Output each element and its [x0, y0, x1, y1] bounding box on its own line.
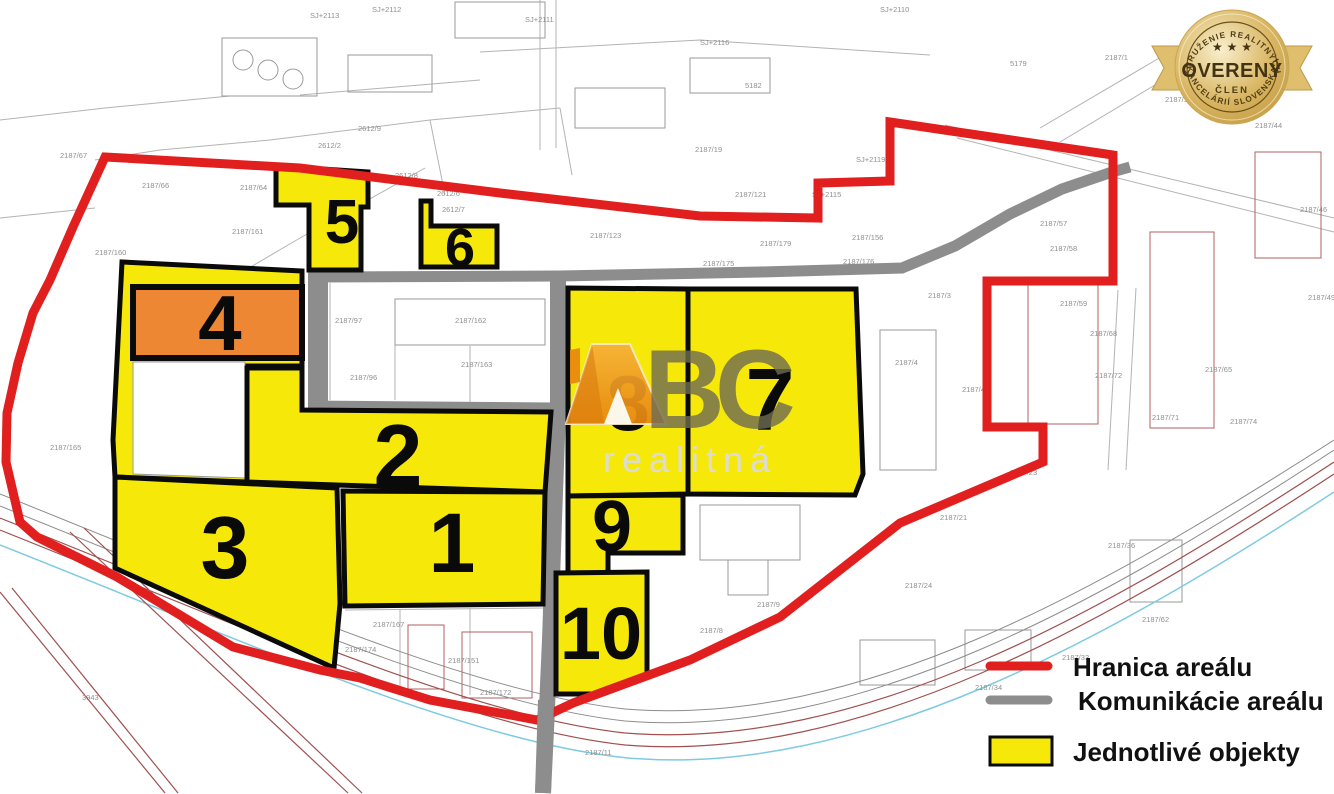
- cadastral-label: 2187/67: [60, 151, 87, 160]
- cadastral-label: 2187/8: [700, 626, 723, 635]
- parcel-2-number: 2: [374, 406, 423, 505]
- cadastral-label: 2187/174: [345, 645, 376, 654]
- cadastral-label: SJ+2112: [372, 5, 401, 14]
- cadastral-label: 2187/161: [232, 227, 263, 236]
- verified-badge: ZDRUŽENIE REALITNÝCH KANCELÁRIÍ SLOVENSK…: [1152, 10, 1312, 124]
- parcel-west-hole: [133, 362, 245, 478]
- cadastral-label: 2187/74: [1230, 417, 1257, 426]
- logo-bc-text: BC: [644, 327, 793, 452]
- legend-object-swatch: [990, 737, 1052, 765]
- cadastral-label: SJ+2111: [525, 15, 554, 24]
- cadastral-label: 2187/71: [1152, 413, 1179, 422]
- cadastral-label: 2187/21: [940, 513, 967, 522]
- cadastral-label: 2187/49: [1308, 293, 1334, 302]
- cadastral-label: 2187/62: [1142, 615, 1169, 624]
- cadastral-label: 2187/156: [852, 233, 883, 242]
- cadastral-label: 2187/57: [1040, 219, 1067, 228]
- cadastral-label: 2187/123: [590, 231, 621, 240]
- cadastral-label: 2187/121: [735, 190, 766, 199]
- cadastral-label: 2187/58: [1050, 244, 1077, 253]
- cadastral-label: 2187/24: [905, 581, 932, 590]
- cadastral-label: 2187/162: [455, 316, 486, 325]
- cadastral-label: 2187/163: [461, 360, 492, 369]
- cadastral-label: 2187/165: [50, 443, 81, 452]
- cadastral-label: 2187/72: [1095, 371, 1122, 380]
- cadastral-label: 2187/4: [895, 358, 918, 367]
- cadastral-label: 5182: [745, 81, 762, 90]
- cadastral-label: 2187/68: [1090, 329, 1117, 338]
- cadastral-label: 2187/59: [1060, 299, 1087, 308]
- cadastral-label: 2187/11: [585, 748, 612, 757]
- parcel-9-number: 9: [592, 487, 632, 567]
- cadastral-label: 2187/167: [373, 620, 404, 629]
- cadastral-label: 2612/7: [442, 205, 465, 214]
- cadastral-label: 2187/19: [695, 145, 722, 154]
- cadastral-label: 2187/151: [448, 656, 479, 665]
- cadastral-label: 2612/2: [318, 141, 341, 150]
- cadastral-label: 2187/44: [1255, 121, 1282, 130]
- parcel-10-number: 10: [560, 592, 642, 675]
- cadastral-map: 2187/672187/662187/642187/1612187/160261…: [0, 0, 1334, 794]
- cadastral-label: SJ+2110: [880, 5, 909, 14]
- cadastral-label: 2187/175: [703, 259, 734, 268]
- cadastral-label: 2187/97: [335, 316, 362, 325]
- cadastral-label: SJ+2119: [856, 155, 885, 164]
- cadastral-label: SJ+2113: [310, 11, 339, 20]
- cadastral-label: 2187/46: [1300, 205, 1327, 214]
- badge-title: OVERENÝ: [1181, 58, 1282, 82]
- legend-boundary-label: Hranica areálu: [1073, 652, 1252, 682]
- cadastral-label: 2187/3: [928, 291, 951, 300]
- logo-a-spur: [570, 348, 580, 384]
- legend: Hranica areálu Komunikácie areálu Jednot…: [990, 652, 1324, 767]
- cadastral-label: 2187/160: [95, 248, 126, 257]
- cadastral-label: 2187/34: [975, 683, 1002, 692]
- parcel-4-number: 4: [198, 279, 241, 367]
- cadastral-label: 2187/179: [760, 239, 791, 248]
- cadastral-label: 2612/9: [358, 124, 381, 133]
- cadastral-label: 2187/64: [240, 183, 267, 192]
- legend-object-label: Jednotlivé objekty: [1073, 737, 1300, 767]
- cadastral-label: SJ+2116: [700, 38, 729, 47]
- cadastral-label: 2187/66: [142, 181, 169, 190]
- parcel-6-number: 6: [445, 218, 475, 278]
- cadastral-label: 5179: [1010, 59, 1027, 68]
- legend-road-label: Komunikácie areálu: [1078, 686, 1324, 716]
- cadastral-label: 2187/96: [350, 373, 377, 382]
- parcel-3-number: 3: [201, 498, 250, 597]
- cadastral-label: 2187/1: [1105, 53, 1128, 62]
- cadastral-label: 2187/9: [757, 600, 780, 609]
- parcel-5-number: 5: [325, 188, 359, 257]
- cadastral-label: 2187/172: [480, 688, 511, 697]
- parcel-1-number: 1: [429, 496, 476, 590]
- cadastral-label: 3943: [82, 693, 99, 702]
- cadastral-label: 2187/36: [1108, 541, 1135, 550]
- logo-tagline: realitná: [603, 439, 777, 480]
- badge-subtitle: ČLEN: [1215, 84, 1249, 96]
- cadastral-label: 2187/65: [1205, 365, 1232, 374]
- road-south-vertical-over: [543, 700, 546, 793]
- badge-stars: ★ ★ ★: [1212, 40, 1252, 54]
